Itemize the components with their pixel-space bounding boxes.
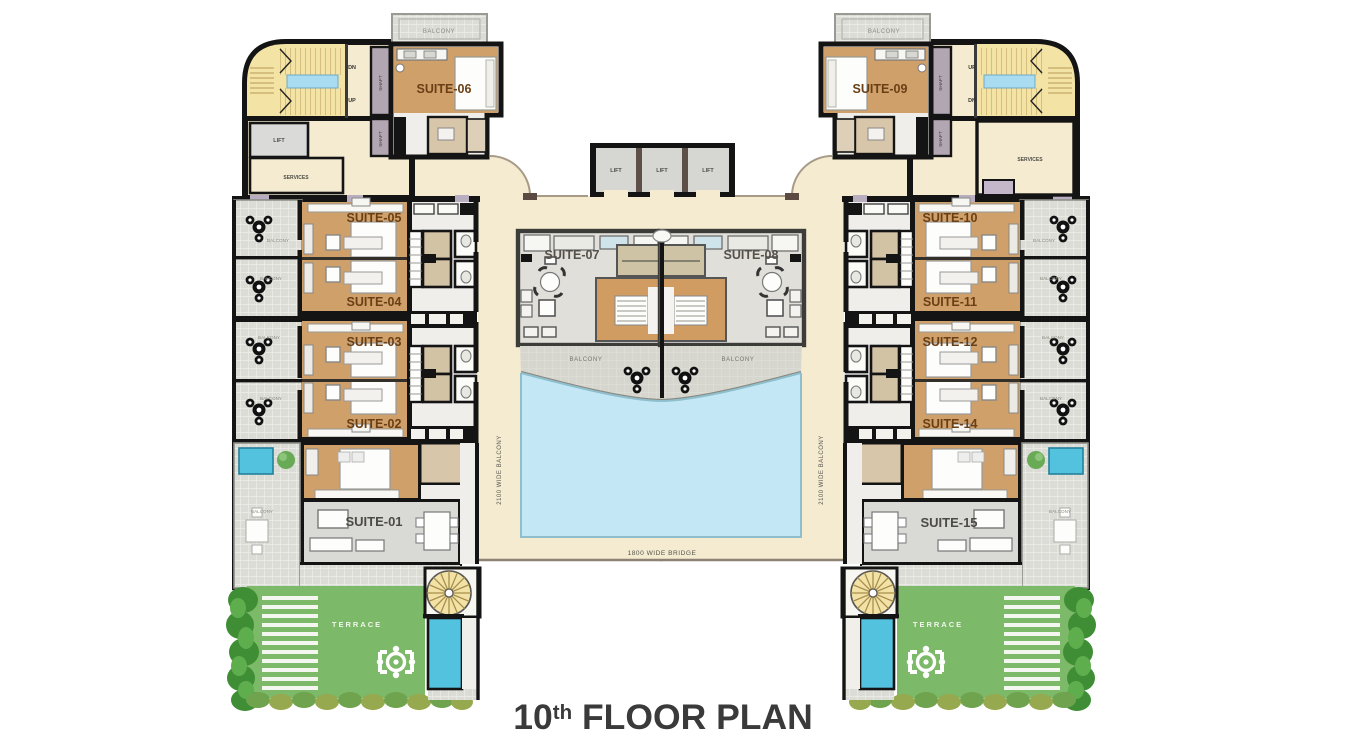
svg-text:BALCONY: BALCONY <box>260 276 282 281</box>
svg-text:1800 WIDE BRIDGE: 1800 WIDE BRIDGE <box>628 550 697 557</box>
svg-text:BALCONY: BALCONY <box>1040 396 1062 401</box>
svg-text:SUITE-10: SUITE-10 <box>923 211 978 225</box>
svg-text:BALCONY: BALCONY <box>1033 238 1055 243</box>
svg-text:LIFT: LIFT <box>702 168 714 174</box>
svg-text:SUITE-09: SUITE-09 <box>853 82 908 96</box>
svg-text:BALCONY: BALCONY <box>423 29 455 35</box>
svg-text:DN: DN <box>348 65 356 71</box>
svg-text:SUITE-06: SUITE-06 <box>417 82 472 96</box>
svg-text:UP: UP <box>968 65 976 71</box>
svg-text:BALCONY: BALCONY <box>722 357 755 363</box>
svg-text:SUITE-07: SUITE-07 <box>545 248 600 262</box>
svg-text:BALCONY: BALCONY <box>868 29 900 35</box>
svg-text:SHAFT: SHAFT <box>378 131 384 147</box>
svg-text:BALCONY: BALCONY <box>1042 335 1064 340</box>
svg-text:LIFT: LIFT <box>656 168 668 174</box>
svg-text:TERRACE: TERRACE <box>913 620 963 629</box>
svg-text:SERVICES: SERVICES <box>1017 157 1043 163</box>
svg-text:SUITE-08: SUITE-08 <box>724 248 779 262</box>
svg-text:LIFT: LIFT <box>610 168 622 174</box>
svg-text:SHAFT: SHAFT <box>378 75 384 91</box>
svg-text:SUITE-05: SUITE-05 <box>347 211 402 225</box>
svg-text:BALCONY: BALCONY <box>267 238 289 243</box>
svg-text:BALCONY: BALCONY <box>1049 509 1071 514</box>
svg-text:SUITE-11: SUITE-11 <box>923 295 977 309</box>
svg-text:TERRACE: TERRACE <box>332 620 382 629</box>
svg-text:SUITE-01: SUITE-01 <box>345 514 402 529</box>
svg-text:SHAFT: SHAFT <box>938 131 944 147</box>
svg-text:SUITE-02: SUITE-02 <box>347 417 402 431</box>
svg-text:SHAFT: SHAFT <box>938 75 944 91</box>
svg-text:SUITE-15: SUITE-15 <box>920 515 977 530</box>
svg-text:LIFT: LIFT <box>273 138 285 144</box>
svg-text:DN: DN <box>968 98 976 104</box>
svg-text:2100 WIDE BALCONY: 2100 WIDE BALCONY <box>497 435 503 505</box>
svg-text:SERVICES: SERVICES <box>283 175 309 181</box>
svg-text:BALCONY: BALCONY <box>1040 276 1062 281</box>
svg-text:SUITE-03: SUITE-03 <box>347 335 402 349</box>
svg-text:SUITE-12: SUITE-12 <box>923 335 978 349</box>
svg-text:SUITE-04: SUITE-04 <box>347 295 402 309</box>
svg-text:2100 WIDE BALCONY: 2100 WIDE BALCONY <box>819 435 825 505</box>
svg-text:BALCONY: BALCONY <box>260 396 282 401</box>
svg-text:UP: UP <box>348 98 356 104</box>
svg-text:BALCONY: BALCONY <box>251 509 273 514</box>
svg-text:BALCONY: BALCONY <box>570 357 603 363</box>
svg-text:SUITE-14: SUITE-14 <box>923 417 978 431</box>
svg-text:BALCONY: BALCONY <box>258 335 280 340</box>
